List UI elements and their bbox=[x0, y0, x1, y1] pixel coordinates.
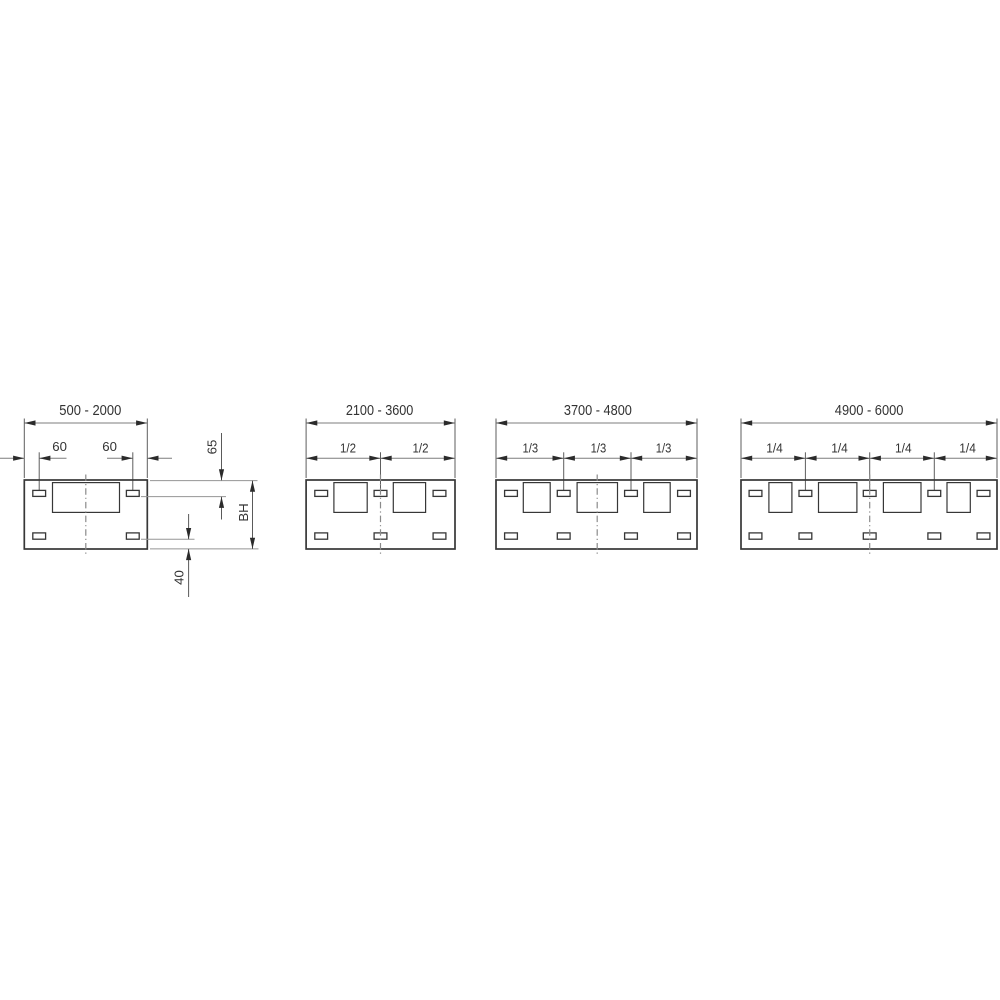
svg-text:40: 40 bbox=[171, 570, 186, 585]
svg-text:1/4: 1/4 bbox=[831, 440, 848, 455]
svg-text:3700 - 4800: 3700 - 4800 bbox=[564, 402, 632, 419]
svg-text:1/3: 1/3 bbox=[591, 440, 607, 455]
svg-text:2100 - 3600: 2100 - 3600 bbox=[346, 402, 414, 419]
svg-text:500 - 2000: 500 - 2000 bbox=[59, 402, 121, 419]
svg-text:1/2: 1/2 bbox=[413, 440, 429, 455]
svg-text:60: 60 bbox=[52, 439, 67, 454]
svg-text:1/4: 1/4 bbox=[766, 440, 783, 455]
svg-text:65: 65 bbox=[204, 440, 219, 455]
svg-text:1/3: 1/3 bbox=[656, 440, 672, 455]
svg-text:1/2: 1/2 bbox=[340, 440, 356, 455]
svg-text:1/3: 1/3 bbox=[523, 440, 539, 455]
svg-text:1/4: 1/4 bbox=[895, 440, 912, 455]
svg-text:4900 - 6000: 4900 - 6000 bbox=[835, 402, 904, 419]
svg-text:BH: BH bbox=[236, 503, 251, 521]
svg-text:60: 60 bbox=[102, 439, 117, 454]
svg-text:1/4: 1/4 bbox=[959, 440, 976, 455]
